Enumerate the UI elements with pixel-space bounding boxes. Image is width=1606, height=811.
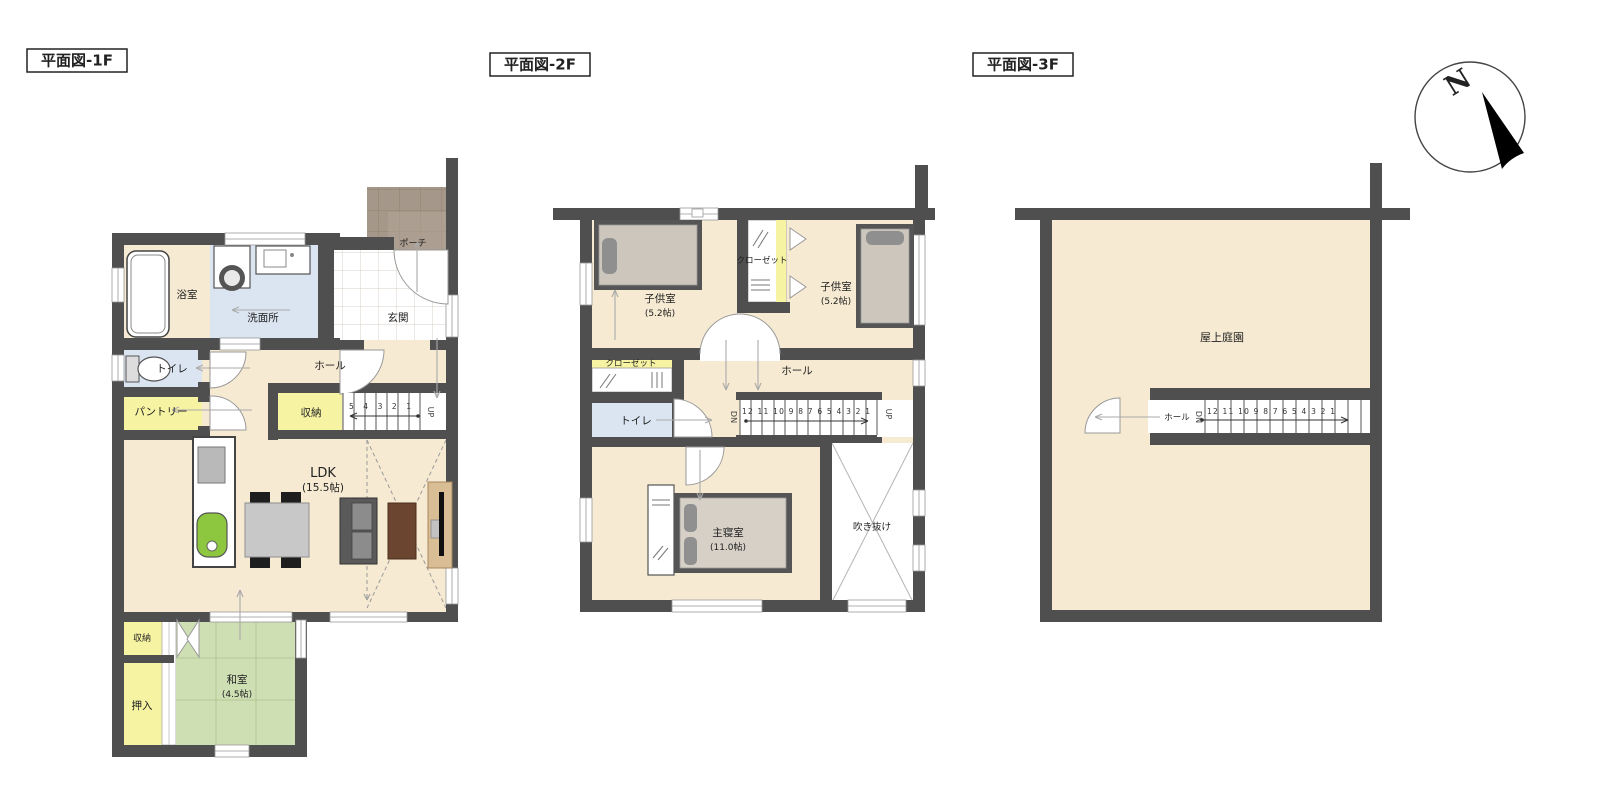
vanity-sink bbox=[256, 246, 310, 274]
stairs-1f-up: UP bbox=[426, 407, 435, 418]
bathtub bbox=[127, 251, 169, 337]
floor-3-plan: 12 11 10 9 8 7 6 5 4 3 2 1 DN ホール 屋上庭園 bbox=[1015, 163, 1410, 622]
master-label: 主寝室 bbox=[712, 526, 744, 539]
title-3f: 平面図-3F bbox=[973, 53, 1073, 76]
kids-bed-left bbox=[594, 220, 702, 290]
title-1f-label: 平面図-1F bbox=[41, 52, 113, 70]
kids1-size-label: (5.2帖) bbox=[645, 307, 675, 319]
title-2f: 平面図-2F bbox=[490, 53, 590, 76]
pantry-label: パントリー bbox=[134, 406, 187, 418]
kids-bed-right bbox=[856, 224, 914, 328]
roof-garden-label: 屋上庭園 bbox=[1200, 330, 1244, 344]
floor-1-plan: 5 4 3 2 1 UP bbox=[112, 158, 458, 757]
storage2-label: 収納 bbox=[133, 632, 151, 644]
coffee-table bbox=[388, 503, 416, 559]
oshiire-label: 押入 bbox=[132, 699, 153, 712]
floor-2-plan: 12 11 10 9 8 7 6 5 4 3 2 1 DN UP bbox=[553, 165, 935, 612]
stairs-3f-dn: DN bbox=[1194, 411, 1203, 423]
closet-left bbox=[592, 368, 672, 392]
kids1-label: 子供室 bbox=[644, 292, 676, 305]
porch-label: ポーチ bbox=[399, 238, 426, 249]
kitchen-counter bbox=[193, 437, 235, 567]
void-label: 吹き抜け bbox=[853, 521, 891, 533]
toilet-2f-label: トイレ bbox=[620, 415, 652, 427]
dining-set bbox=[245, 492, 309, 568]
sofa bbox=[340, 498, 377, 564]
master-closet bbox=[648, 485, 674, 575]
hall-2f-label: ホール bbox=[781, 365, 813, 377]
tv-board bbox=[428, 482, 452, 568]
ldk-label: LDK bbox=[310, 466, 336, 481]
closet-left-label: クローゼット bbox=[605, 358, 656, 369]
hall-1f-label: ホール bbox=[314, 360, 346, 372]
kids2-size-label: (5.2帖) bbox=[821, 295, 851, 307]
stairs-1f: 5 4 3 2 1 UP bbox=[343, 393, 446, 430]
floorplan-drawing: 平面図-1F 平面図-2F 平面図-3F bbox=[0, 0, 1606, 811]
stairs-2f-dn: DN bbox=[729, 411, 738, 423]
title-3f-label: 平面図-3F bbox=[987, 56, 1059, 74]
tv bbox=[439, 492, 444, 556]
kids2-label: 子供室 bbox=[820, 280, 852, 293]
compass: N bbox=[1415, 62, 1525, 172]
washitsu-size-label: (4.5帖) bbox=[222, 688, 252, 700]
entrance-label: 玄関 bbox=[388, 311, 409, 324]
stairs-2f: 12 11 10 9 8 7 6 5 4 3 2 1 DN UP bbox=[729, 400, 913, 437]
storage-1f-label: 収納 bbox=[301, 406, 322, 419]
closet-center-label: クローゼット bbox=[736, 255, 787, 266]
stairs-1f-numbers: 5 4 3 2 1 bbox=[349, 402, 411, 411]
stairs-2f-up: UP bbox=[884, 409, 893, 420]
master-size-label: (11.0帖) bbox=[710, 541, 746, 553]
ldk-size-label: (15.5帖) bbox=[302, 481, 344, 494]
washitsu-label: 和室 bbox=[227, 673, 248, 686]
bath-label: 浴室 bbox=[177, 288, 198, 301]
hall-3f-label: ホール bbox=[1164, 413, 1190, 423]
washroom-label: 洗面所 bbox=[247, 312, 279, 324]
toilet-1f-label: トイレ bbox=[156, 363, 188, 375]
floorplan-sheet: 平面図-1F 平面図-2F 平面図-3F bbox=[0, 0, 1606, 811]
title-2f-label: 平面図-2F bbox=[504, 56, 576, 74]
title-1f: 平面図-1F bbox=[27, 49, 127, 72]
washing-machine bbox=[214, 246, 250, 291]
